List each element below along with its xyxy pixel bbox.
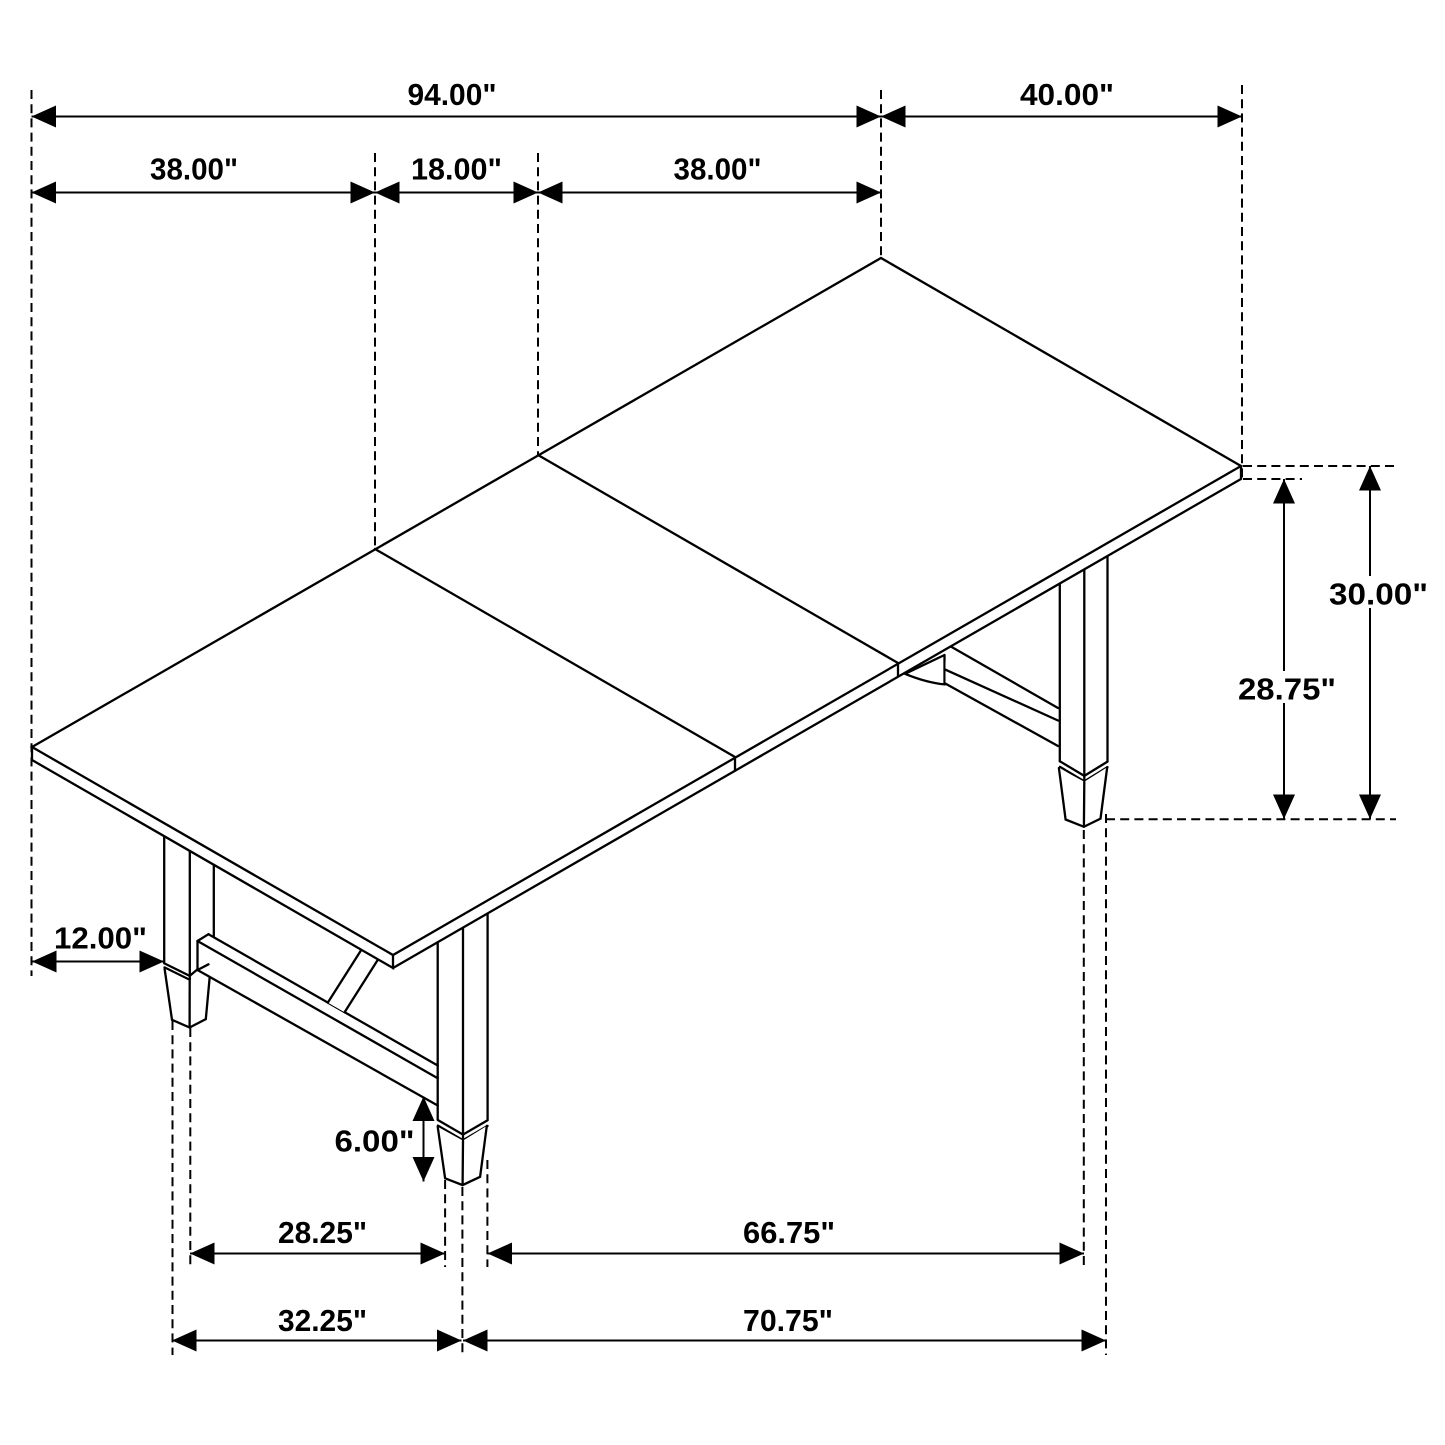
svg-text:28.25": 28.25": [278, 1215, 367, 1250]
svg-text:94.00": 94.00": [408, 77, 497, 112]
svg-text:28.75": 28.75": [1238, 672, 1336, 707]
svg-text:40.00": 40.00": [1020, 77, 1114, 112]
svg-text:32.25": 32.25": [278, 1303, 367, 1338]
svg-text:12.00": 12.00": [54, 921, 147, 956]
svg-text:66.75": 66.75": [743, 1215, 835, 1250]
svg-text:18.00": 18.00": [411, 152, 502, 187]
svg-text:70.75": 70.75": [743, 1303, 833, 1338]
svg-text:30.00": 30.00": [1329, 577, 1428, 612]
svg-text:38.00": 38.00": [150, 152, 238, 187]
svg-text:38.00": 38.00": [674, 152, 762, 187]
svg-text:6.00": 6.00": [335, 1124, 415, 1159]
